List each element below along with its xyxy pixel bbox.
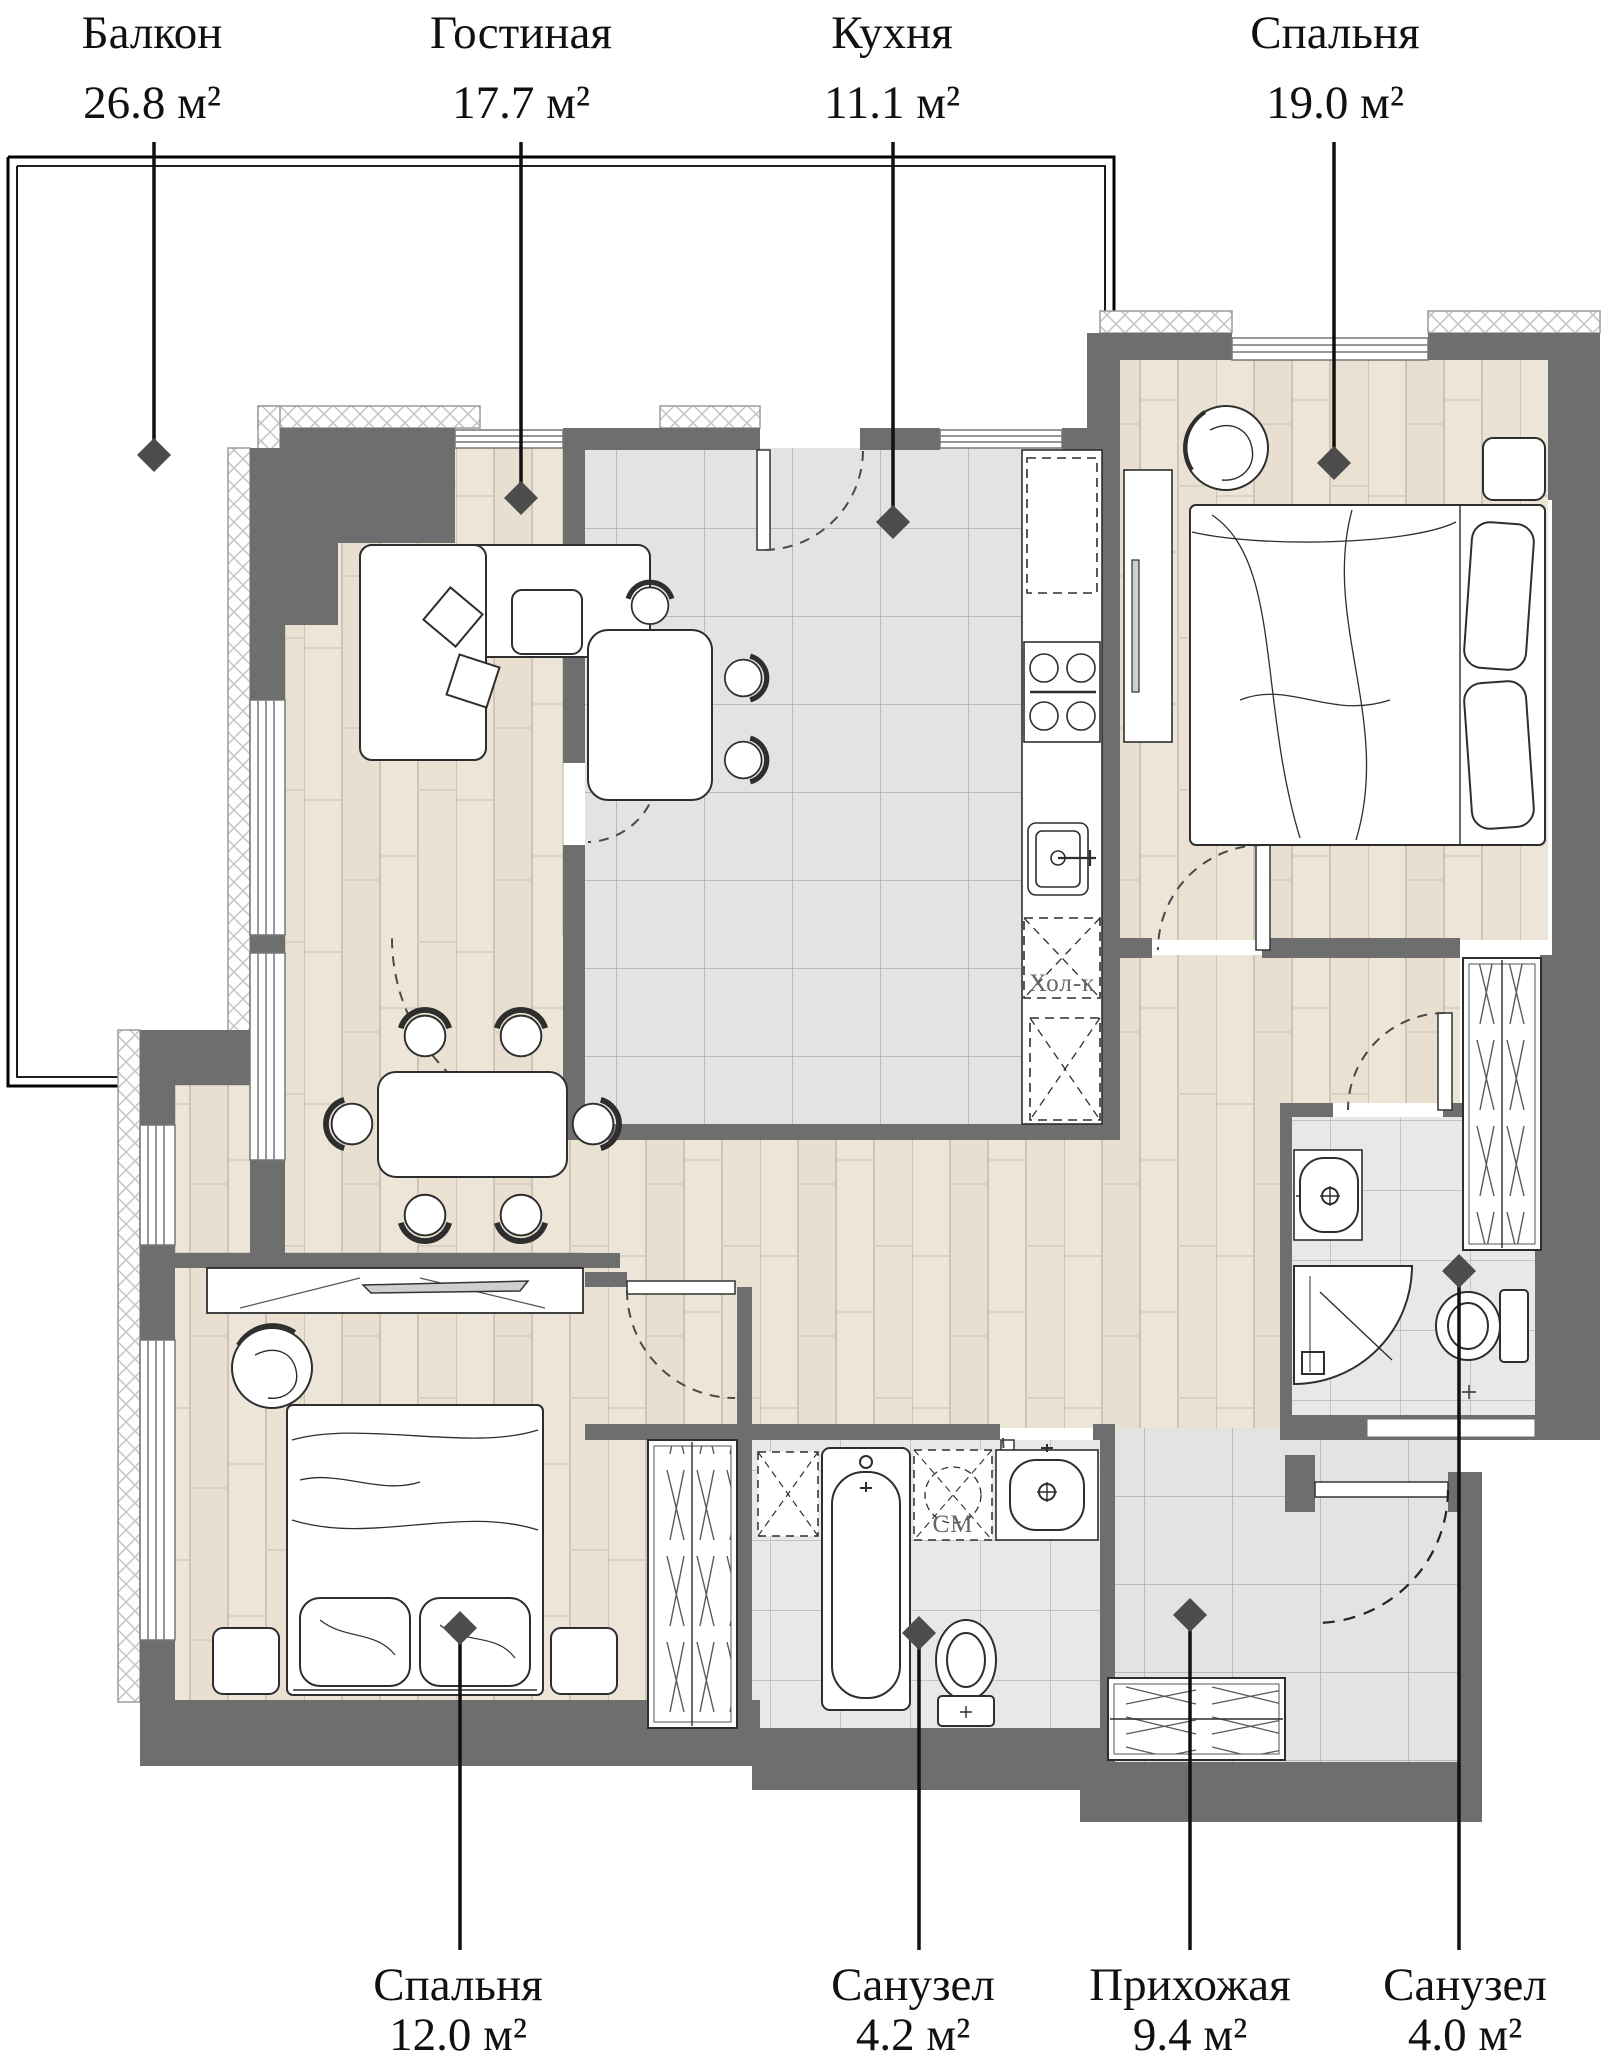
tv-bedroom-main bbox=[1132, 560, 1139, 692]
wall-nw-pylon-leg bbox=[280, 540, 338, 625]
label-living: Гостиная 17.7 м² bbox=[430, 7, 612, 129]
stove bbox=[1024, 642, 1100, 742]
label-bathroom-shower: Санузел 4.0 м² bbox=[1383, 1959, 1547, 2060]
label-kitchen: Кухня 11.1 м² bbox=[824, 7, 960, 129]
svg-text:26.8 м²: 26.8 м² bbox=[83, 77, 221, 129]
svg-text:Балкон: Балкон bbox=[82, 7, 223, 59]
kitchen-table bbox=[588, 630, 712, 800]
svg-text:Кухня: Кухня bbox=[831, 7, 953, 59]
shower-sink bbox=[1294, 1150, 1362, 1240]
label-bathroom-tub: Санузел 4.2 м² bbox=[831, 1959, 995, 2060]
nightstand bbox=[551, 1628, 617, 1694]
nightstand-main bbox=[1483, 438, 1545, 500]
svg-text:11.1 м²: 11.1 м² bbox=[824, 77, 960, 129]
window-living-north bbox=[455, 430, 563, 448]
armchair-main bbox=[1184, 406, 1268, 490]
kitchen-upper-cabinet bbox=[1027, 458, 1097, 593]
svg-text:Прихожая: Прихожая bbox=[1089, 1959, 1291, 2011]
svg-text:Санузел: Санузел bbox=[1383, 1959, 1547, 2011]
window-dining-west-2 bbox=[250, 953, 285, 1160]
window-kitchen-north bbox=[940, 430, 1062, 448]
floor-plan-canvas: Хол-к bbox=[0, 0, 1621, 2060]
shelf-cabinet bbox=[758, 1452, 818, 1536]
bathroom-tub-sink bbox=[996, 1444, 1098, 1540]
window-bedroom-second-west-2 bbox=[140, 1340, 175, 1640]
label-balcony: Балкон 26.8 м² bbox=[82, 7, 223, 129]
svg-text:17.7 м²: 17.7 м² bbox=[452, 77, 590, 129]
window-dining-west-1 bbox=[250, 700, 285, 935]
tv-console bbox=[207, 1268, 583, 1313]
dining-table bbox=[378, 1072, 567, 1177]
label-bedroom-second: Спальня 12.0 м² bbox=[373, 1959, 542, 2060]
coffee-table bbox=[512, 590, 582, 654]
fridge-label: Хол-к bbox=[1029, 970, 1096, 997]
coat-rack-entry bbox=[1108, 1678, 1285, 1760]
label-bedroom-main: Спальня 19.0 м² bbox=[1250, 7, 1419, 129]
wall-niche bbox=[1367, 1419, 1535, 1437]
label-hallway: Прихожая 9.4 м² bbox=[1089, 1959, 1291, 2060]
svg-text:4.2 м²: 4.2 м² bbox=[856, 2009, 970, 2060]
bedroom-main-console bbox=[1124, 470, 1172, 742]
svg-text:4.0 м²: 4.0 м² bbox=[1408, 2009, 1522, 2060]
floor-plan-drawing: Хол-к bbox=[0, 0, 1621, 2060]
pillow bbox=[300, 1598, 410, 1686]
window-bedroom-second-west-1 bbox=[140, 1125, 175, 1245]
svg-text:Санузел: Санузел bbox=[831, 1959, 995, 2011]
closet-bedroom-second bbox=[648, 1440, 737, 1728]
sofa-chaise bbox=[360, 545, 486, 760]
pillow bbox=[420, 1598, 530, 1686]
leader-balcony bbox=[137, 142, 171, 472]
svg-text:Спальня: Спальня bbox=[1250, 7, 1419, 59]
svg-text:9.4 м²: 9.4 м² bbox=[1133, 2009, 1247, 2060]
kitchen-sink bbox=[1028, 823, 1096, 895]
pillow bbox=[1463, 680, 1535, 830]
pillow bbox=[1463, 521, 1535, 671]
lower-cabinet bbox=[1030, 1018, 1100, 1120]
svg-text:12.0 м²: 12.0 м² bbox=[389, 2009, 527, 2060]
washer-label: СМ bbox=[933, 1511, 974, 1538]
svg-text:Гостиная: Гостиная bbox=[430, 7, 612, 59]
nightstand bbox=[213, 1628, 279, 1694]
wardrobe-dressing bbox=[1463, 958, 1541, 1250]
svg-text:Спальня: Спальня bbox=[373, 1959, 542, 2011]
toilet-tub-bath bbox=[936, 1620, 996, 1726]
bathtub bbox=[822, 1448, 910, 1710]
window-bedroom-main bbox=[1232, 338, 1428, 360]
svg-text:19.0 м²: 19.0 м² bbox=[1266, 77, 1404, 129]
wall-nw-pylon bbox=[280, 428, 455, 543]
